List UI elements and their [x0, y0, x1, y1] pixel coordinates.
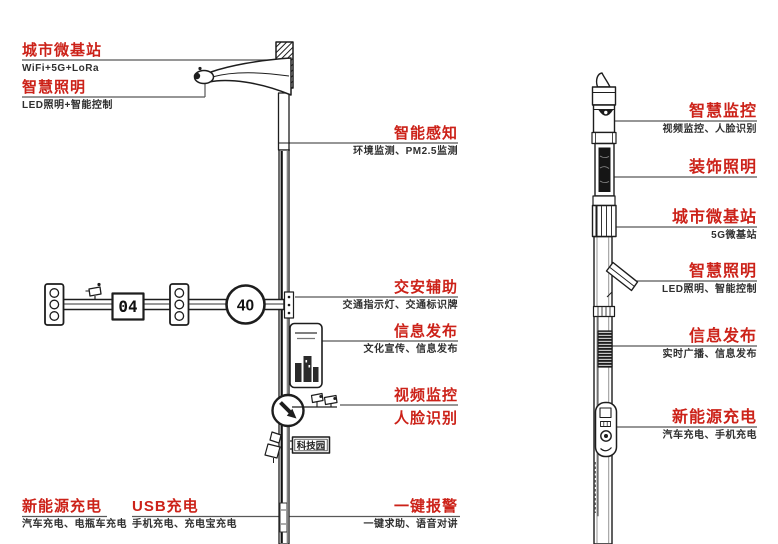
callout-smart-sensing: 智能感知 环境监测、PM2.5监测 [353, 126, 458, 157]
callout-title: 视频监控 [394, 388, 458, 404]
5g-microstation-section [593, 206, 617, 237]
top-cap-band [593, 87, 616, 105]
street-name-sign: 科技园 [290, 437, 330, 453]
callout-title: 交安辅助 [343, 280, 459, 296]
ev-charging-panel [596, 403, 617, 457]
traffic-light-left [45, 284, 64, 325]
callout-title: 智慧照明 [662, 263, 757, 280]
right-pole-illustration [592, 73, 638, 544]
left-pole-illustration: 04 40 [45, 42, 337, 544]
callout-sub: WiFi+5G+LoRa [22, 63, 102, 74]
joint-band-1 [592, 133, 616, 144]
callout-title: 智能感知 [353, 126, 458, 142]
callout-video-face: 视频监控 人脸识别 [394, 388, 458, 427]
charging-screen [600, 408, 611, 418]
dome-camera-section [594, 105, 615, 133]
callout-sub: 实时广播、信息发布 [663, 349, 758, 360]
callout-sub: 交通指示灯、交通标识牌 [343, 300, 459, 311]
callout-title: 城市微基站 [22, 43, 102, 59]
callout-one-key-alarm: 一键报警 一键求助、语音对讲 [364, 499, 459, 530]
callout-sub: 汽车充电、手机充电 [663, 430, 758, 441]
callout-city-microstation: 城市微基站 WiFi+5G+LoRa [22, 43, 102, 74]
countdown-digits: 04 [118, 297, 137, 316]
right-pole-shaft [594, 237, 612, 544]
callout-usb-charging: USB充电 手机充电、充电宝充电 [132, 499, 237, 530]
callout-sub: LED照明、智能控制 [662, 284, 757, 295]
pole-top-fin [597, 73, 610, 87]
countdown-display: 04 [113, 294, 144, 320]
callout-r-microstation: 城市微基站 5G微基站 [672, 209, 757, 241]
callout-traffic-aid: 交安辅助 交通指示灯、交通标识牌 [343, 280, 459, 311]
callout-r-new-energy: 新能源充电 汽车充电、手机充电 [663, 409, 758, 441]
callout-r-info-release: 信息发布 实时广播、信息发布 [663, 328, 758, 360]
callout-r-deco-light: 装饰照明 [689, 159, 757, 176]
callout-sub: 汽车充电、电瓶车充电 [22, 519, 127, 530]
callout-smart-lighting: 智慧照明 LED照明+智能控制 [22, 80, 113, 111]
callout-title: 装饰照明 [689, 159, 757, 176]
callout-title-second: 人脸识别 [394, 411, 458, 427]
callout-sub: 一键求助、语音对讲 [364, 519, 459, 530]
joint-band-2 [593, 196, 615, 206]
callout-title: 新能源充电 [663, 409, 758, 426]
arm-camera-icon [86, 283, 102, 300]
street-name-text: 科技园 [297, 440, 326, 452]
callout-new-energy: 新能源充电 汽车充电、电瓶车充电 [22, 499, 127, 530]
callout-sub: 文化宣传、信息发布 [364, 344, 459, 355]
callout-title: 一键报警 [364, 499, 459, 515]
callout-sub: 环境监测、PM2.5监测 [353, 146, 458, 157]
callout-r-smart-lighting: 智慧照明 LED照明、智能控制 [662, 263, 757, 295]
callout-r-smart-monitor: 智慧监控 视频监控、人脸识别 [663, 103, 758, 135]
decorative-light-strip [595, 144, 614, 197]
callout-sub: 视频监控、人脸识别 [663, 124, 758, 135]
traffic-light-right [170, 284, 189, 325]
callout-title: 信息发布 [663, 328, 758, 345]
callout-sub: 手机充电、充电宝充电 [132, 519, 237, 530]
callout-title: 信息发布 [364, 324, 459, 340]
broadcast-speaker-panel [598, 331, 612, 367]
pole-access-panel [280, 503, 287, 532]
callout-sub: 5G微基站 [672, 230, 757, 241]
callout-title: 新能源充电 [22, 499, 127, 515]
callout-sub: LED照明+智能控制 [22, 100, 113, 111]
callout-title: 智慧监控 [663, 103, 758, 120]
lamp-arm [194, 58, 291, 95]
callout-title: USB充电 [132, 499, 237, 515]
info-display-board [290, 324, 322, 388]
speed-limit-sign: 40 [227, 286, 265, 324]
arrow-direction-sign [273, 395, 304, 426]
smart-pole-diagram: 04 40 [0, 0, 778, 544]
callout-title: 智慧照明 [22, 80, 113, 96]
speed-limit-value: 40 [237, 298, 254, 315]
callout-info-release: 信息发布 文化宣传、信息发布 [364, 324, 459, 355]
callout-title: 城市微基站 [672, 209, 757, 226]
